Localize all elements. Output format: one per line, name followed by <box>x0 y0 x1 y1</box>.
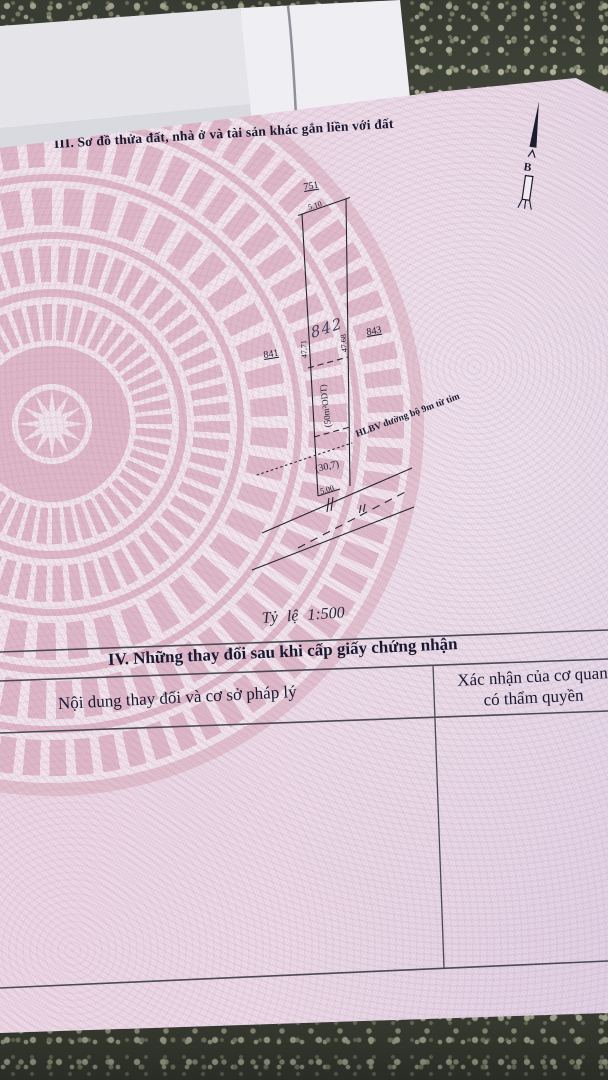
parcel-top-edge <box>298 198 350 216</box>
north-fins-icon <box>518 199 533 210</box>
road-centerline-tick <box>360 504 366 513</box>
parcel-number-751-label: 751 <box>303 180 320 193</box>
dim-bottom-label: 5.00 <box>319 483 335 496</box>
dim-right-label: 47.68 <box>339 334 349 353</box>
parcel-number-841-label: 841 <box>263 348 280 361</box>
north-barb-icon <box>528 150 536 158</box>
dim-top-label: 5.10 <box>307 199 323 212</box>
cadastral-diagram: 751 5.10 841 843 842 47.71 47.68 (50m²OD… <box>0 0 608 1080</box>
area-odt-label: (50m²ODT) <box>318 384 333 428</box>
table-rule-bottom <box>0 961 608 988</box>
certificate-page: 751 5.10 841 843 842 47.71 47.68 (50m²OD… <box>0 0 608 1080</box>
bottom-edge-tick <box>327 497 333 512</box>
north-arrow: B <box>518 101 546 210</box>
photo-scene: 751 5.10 841 843 842 47.71 47.68 (50m²OD… <box>0 0 608 1080</box>
corridor-label: HLBV đường bộ 9m từ tim <box>355 392 462 440</box>
table-rule-under-headers <box>0 711 608 733</box>
road-edge-far <box>252 507 414 570</box>
north-label: B <box>523 161 533 174</box>
road-width-label: (30,7) <box>314 459 340 475</box>
parcel-number-843-label: 843 <box>366 325 383 338</box>
setback-dashed-line-2 <box>314 427 350 437</box>
north-needle-icon <box>530 101 543 148</box>
table-right-header: Xác nhận của cơ quan có thẩm quyền <box>432 661 608 713</box>
north-tail-icon <box>522 176 533 201</box>
road-centerline <box>298 490 409 548</box>
dim-left-label: 47.71 <box>299 340 309 358</box>
setback-dashed-line-1 <box>308 357 348 368</box>
